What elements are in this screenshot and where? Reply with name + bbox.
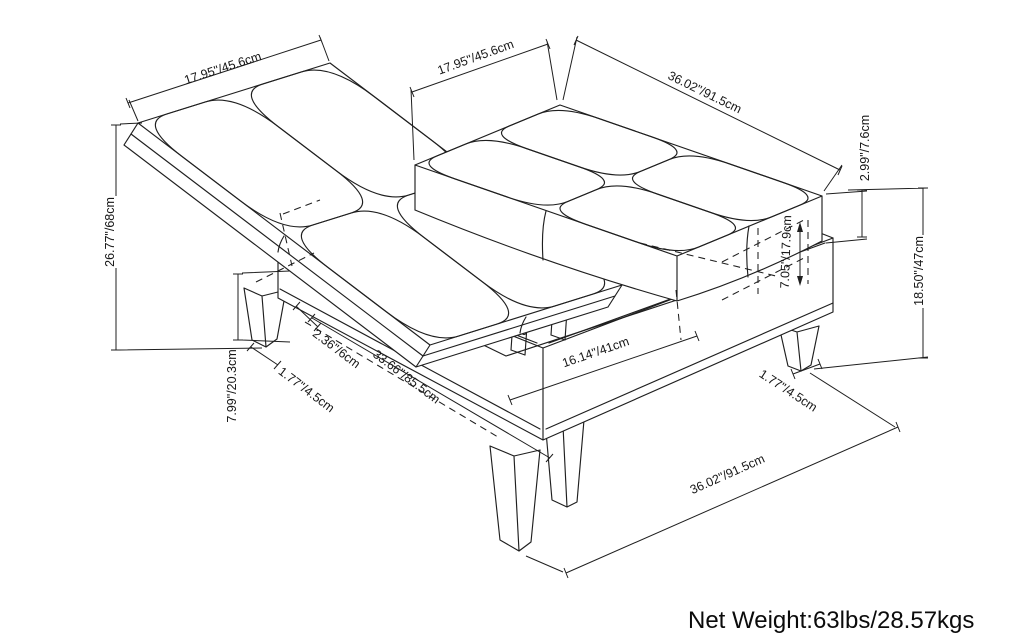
- dim-label-overall-height: 18.50"/47cm: [912, 236, 926, 306]
- net-weight-label: Net Weight:63lbs/28.57kgs: [688, 607, 974, 634]
- dimension-front-leg-width: 1.77"/4.5cm: [247, 343, 337, 415]
- dim-label-open-lid-height: 26.77"/68cm: [103, 197, 117, 267]
- technical-drawing-canvas: 17.95"/45.6cm 17.95"/45.6cm 36.02"/91.5c…: [0, 0, 1024, 641]
- dim-label-front-leg-width: 1.77"/4.5cm: [276, 364, 337, 415]
- dimension-rear-leg-width: 1.77"/4.5cm: [757, 359, 822, 415]
- dim-label-lid-panel-width: 17.95"/45.6cm: [182, 49, 263, 87]
- dim-label-overall-depth: 36.02"/91.5cm: [666, 69, 744, 117]
- dim-label-base-clearance: 7.99"/20.3cm: [225, 349, 239, 422]
- dim-label-rear-leg-width: 1.77"/4.5cm: [757, 367, 820, 415]
- dim-label-storage-interior-depth: 7.05"/17.9cm: [778, 215, 795, 289]
- dim-label-fixed-panel-width: 17.95"/45.6cm: [436, 37, 516, 78]
- ottoman-dimension-diagram: 17.95"/45.6cm 17.95"/45.6cm 36.02"/91.5c…: [0, 0, 1024, 641]
- dim-label-cushion-thickness: 2.99"/7.6cm: [858, 115, 872, 181]
